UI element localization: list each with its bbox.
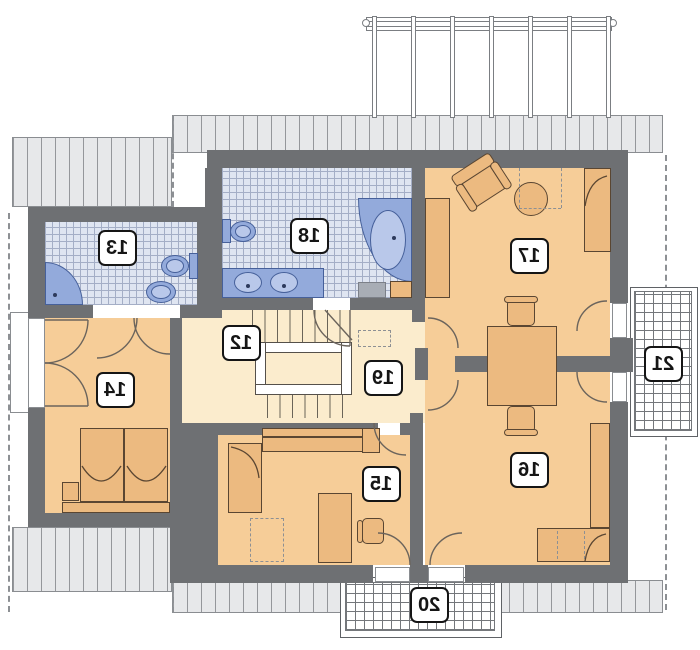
stair-handrail-right bbox=[341, 342, 352, 395]
wall bbox=[218, 298, 313, 310]
balcony-door-threshold-17 bbox=[612, 303, 627, 338]
balcony-door-threshold-16 bbox=[612, 372, 627, 402]
room-plate-18: 18 bbox=[290, 218, 329, 254]
room-plate-20: 20 bbox=[410, 587, 449, 623]
roof-break-dashed-top bbox=[172, 115, 174, 207]
french-door-threshold bbox=[28, 318, 45, 408]
bathtub-drain-dot bbox=[392, 236, 396, 240]
roof-kneewall-dashed bbox=[561, 168, 562, 208]
wall bbox=[455, 356, 487, 372]
roof-kneewall-dashed bbox=[519, 168, 520, 208]
roof-band-top-left bbox=[12, 137, 172, 207]
roof-band-bottom-left bbox=[12, 527, 172, 592]
wall bbox=[415, 348, 428, 380]
desk bbox=[487, 326, 557, 406]
wall bbox=[610, 168, 628, 303]
toilet-bowl-inner bbox=[235, 225, 251, 238]
railing-post bbox=[606, 16, 611, 118]
wall bbox=[197, 222, 222, 305]
wall bbox=[28, 408, 45, 527]
railing-post bbox=[528, 16, 533, 118]
floor-plan-canvas: 13 18 17 12 19 14 15 16 21 20 bbox=[0, 0, 700, 650]
chair-back bbox=[504, 296, 538, 303]
wall bbox=[28, 222, 45, 318]
roof-band-top bbox=[172, 115, 663, 153]
roof-kneewall-dashed bbox=[519, 208, 561, 209]
bed-single bbox=[537, 528, 610, 562]
sink-basin bbox=[270, 272, 298, 293]
wall bbox=[350, 298, 412, 310]
room-plate-13: 13 bbox=[98, 230, 137, 266]
wall bbox=[205, 565, 373, 583]
chair-back bbox=[357, 520, 363, 543]
wall bbox=[465, 565, 628, 583]
room-plate-19: 19 bbox=[364, 360, 403, 396]
sofa-seat bbox=[262, 437, 363, 452]
desk bbox=[318, 493, 352, 563]
railing-end-cap-left bbox=[362, 19, 370, 27]
chair-back bbox=[504, 429, 538, 436]
sofa-armrest bbox=[362, 428, 380, 453]
toilet-tank bbox=[189, 253, 198, 279]
double-bed-mattress bbox=[80, 428, 124, 502]
staircase-upper-flight bbox=[252, 310, 352, 342]
sink-drain-dot bbox=[282, 284, 286, 288]
doorway-floor-patch bbox=[425, 356, 455, 372]
wall bbox=[410, 565, 428, 583]
wardrobe bbox=[425, 198, 450, 298]
wall bbox=[412, 168, 425, 322]
shower-drain-dot bbox=[53, 293, 57, 297]
sink-basin bbox=[234, 272, 262, 293]
bathtub-basin bbox=[370, 210, 406, 270]
wall bbox=[170, 318, 182, 423]
staircase-lower-flight bbox=[267, 395, 352, 418]
room-plate-15: 15 bbox=[362, 466, 401, 502]
wardrobe bbox=[590, 423, 610, 528]
wall bbox=[557, 356, 610, 372]
wall bbox=[610, 338, 633, 372]
sofa-back bbox=[262, 428, 363, 437]
room-plate-21: 21 bbox=[644, 346, 683, 382]
bed-dashed-line bbox=[557, 531, 558, 559]
sink-drain-dot bbox=[246, 284, 250, 288]
bed-single bbox=[584, 168, 611, 252]
nightstand bbox=[62, 482, 79, 501]
stair-handrail-bottom bbox=[255, 384, 352, 395]
wall bbox=[205, 168, 222, 222]
roof-window-dashed bbox=[250, 518, 284, 562]
room-plate-14: 14 bbox=[96, 372, 135, 408]
balcony-door-threshold-15 bbox=[375, 567, 410, 582]
railing-post bbox=[411, 16, 416, 118]
wall bbox=[45, 305, 93, 318]
stair-handrail-top bbox=[255, 342, 352, 353]
railing-post bbox=[372, 16, 377, 118]
ceiling-opening-dashed bbox=[358, 330, 391, 347]
balcony-door-threshold-16b bbox=[428, 567, 464, 582]
wall bbox=[610, 402, 628, 565]
bed-headboard bbox=[62, 502, 170, 513]
railing-post bbox=[489, 16, 494, 118]
wall bbox=[410, 413, 423, 565]
railing-post bbox=[450, 16, 455, 118]
bed-dashed-line bbox=[584, 531, 585, 559]
bathroom-cabinet bbox=[390, 281, 412, 298]
railing-post bbox=[567, 16, 572, 118]
wall bbox=[180, 305, 222, 318]
wall bbox=[28, 207, 220, 222]
room-plate-12: 12 bbox=[222, 325, 261, 361]
wall bbox=[170, 423, 218, 583]
double-bed-mattress bbox=[124, 428, 168, 502]
room-plate-17: 17 bbox=[510, 238, 549, 274]
wall bbox=[207, 150, 628, 168]
chair bbox=[507, 299, 535, 326]
toilet-bowl-inner bbox=[166, 259, 184, 273]
washbasin-inner bbox=[151, 285, 171, 299]
chair bbox=[362, 518, 384, 544]
room-plate-16: 16 bbox=[510, 452, 549, 488]
bathtub-step bbox=[358, 282, 386, 298]
chaise-bed bbox=[228, 443, 262, 513]
